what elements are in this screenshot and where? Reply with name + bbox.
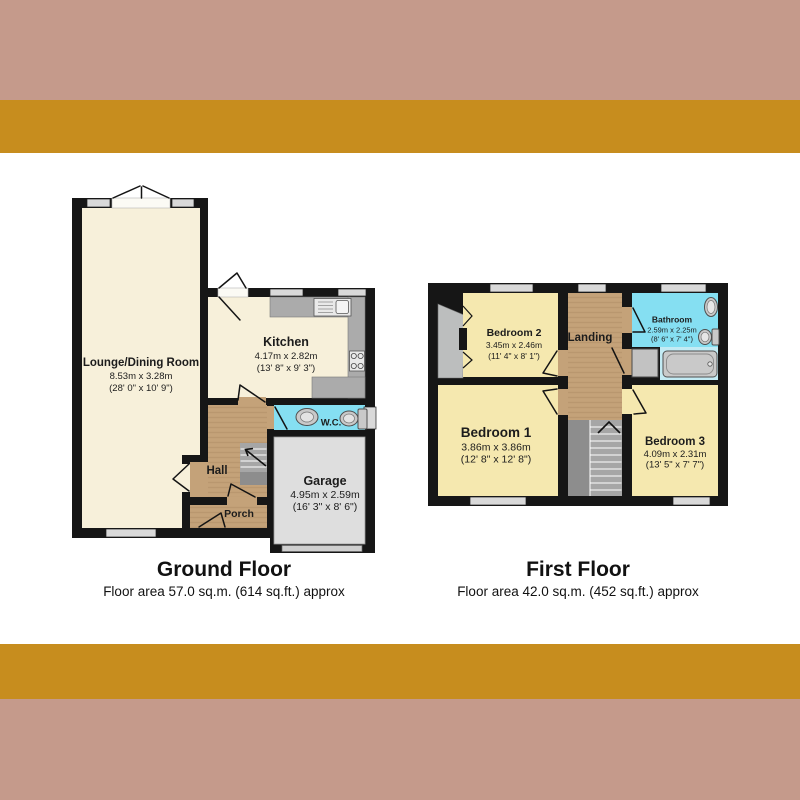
window <box>87 199 110 207</box>
ground-floor-caption: Ground Floor Floor area 57.0 sq.m. (614 … <box>64 558 384 600</box>
bathroom-metric: 2.59m x 2.25m <box>647 326 697 335</box>
landing-label: Landing <box>568 332 613 344</box>
window <box>172 199 194 207</box>
wc-label: W.C. <box>321 418 342 429</box>
garage-door <box>282 546 362 552</box>
window <box>578 284 606 292</box>
hob-icon <box>350 351 365 371</box>
bathroom-label: Bathroom <box>652 315 693 325</box>
back-door-opening <box>218 288 248 297</box>
window <box>106 529 156 537</box>
window <box>673 497 710 505</box>
lounge-imperial: (28' 0" x 10' 9") <box>109 383 173 394</box>
window <box>338 289 366 296</box>
floorplans-svg: Lounge/Dining Room 8.53m x 3.28m (28' 0"… <box>0 0 800 800</box>
ground-floor-title: Ground Floor <box>64 558 384 582</box>
porch-label: Porch <box>224 508 254 520</box>
room-bedroom1 <box>438 385 558 496</box>
first-floor-area: Floor area 42.0 sq.m. (452 sq.ft.) appro… <box>418 583 738 600</box>
kitchen-imperial: (13' 8" x 9' 3") <box>257 363 315 374</box>
bathtub-icon <box>663 351 717 377</box>
ground-floor-area: Floor area 57.0 sq.m. (614 sq.ft.) appro… <box>64 583 384 600</box>
bedroom1-metric: 3.86m x 3.86m <box>461 442 531 454</box>
french-doors-swing <box>113 186 169 198</box>
bedroom1-imperial: (12' 8" x 12' 8") <box>461 454 531 466</box>
room-landing <box>558 293 632 420</box>
lounge-label: Lounge/Dining Room <box>83 357 199 369</box>
bathroom-sink-icon <box>705 298 718 317</box>
ground-stairs-icon <box>240 443 267 485</box>
wardrobe-wall-stub <box>459 328 467 350</box>
bathroom-imperial: (8' 6" x 7' 4") <box>651 335 693 344</box>
kitchen-label: Kitchen <box>263 335 309 349</box>
first-floor-caption: First Floor Floor area 42.0 sq.m. (452 s… <box>418 558 738 600</box>
bedroom2-metric: 3.45m x 2.46m <box>486 340 542 350</box>
lounge-metric: 8.53m x 3.28m <box>110 371 173 382</box>
landing-cupboard <box>632 349 658 377</box>
first-floor-title: First Floor <box>418 558 738 582</box>
garage-imperial: (16' 3" x 8' 6") <box>293 501 358 513</box>
property-floorplan-image: Lounge/Dining Room 8.53m x 3.28m (28' 0"… <box>0 0 800 800</box>
bedroom3-imperial: (13' 5" x 7' 7") <box>646 460 704 471</box>
first-floor-plan: Bedroom 2 3.45m x 2.46m (11' 4" x 8' 1")… <box>428 283 728 506</box>
garage-metric: 4.95m x 2.59m <box>290 489 360 501</box>
kitchen-metric: 4.17m x 2.82m <box>255 351 318 362</box>
wc-sink-icon <box>296 409 318 426</box>
garage-label: Garage <box>303 474 346 488</box>
kitchen-sink-icon <box>314 299 351 317</box>
lounge-door-opening <box>182 464 190 492</box>
bedroom1-label: Bedroom 1 <box>461 425 532 440</box>
first-stairs-icon <box>568 420 622 496</box>
french-door-opening <box>112 198 170 208</box>
bedroom3-door-opening <box>622 389 632 414</box>
bedroom2-label: Bedroom 2 <box>487 327 542 339</box>
window <box>661 284 706 292</box>
hall-label: Hall <box>206 465 227 477</box>
ground-floor-plan: Lounge/Dining Room 8.53m x 3.28m (28' 0"… <box>72 186 376 553</box>
window <box>470 497 526 505</box>
window <box>270 289 303 296</box>
bedroom3-metric: 4.09m x 2.31m <box>644 449 707 460</box>
bedroom2-imperial: (11' 4" x 8' 1") <box>488 351 540 361</box>
bedroom3-label: Bedroom 3 <box>645 436 705 448</box>
bathroom-toilet-icon <box>699 329 720 345</box>
window <box>490 284 533 292</box>
